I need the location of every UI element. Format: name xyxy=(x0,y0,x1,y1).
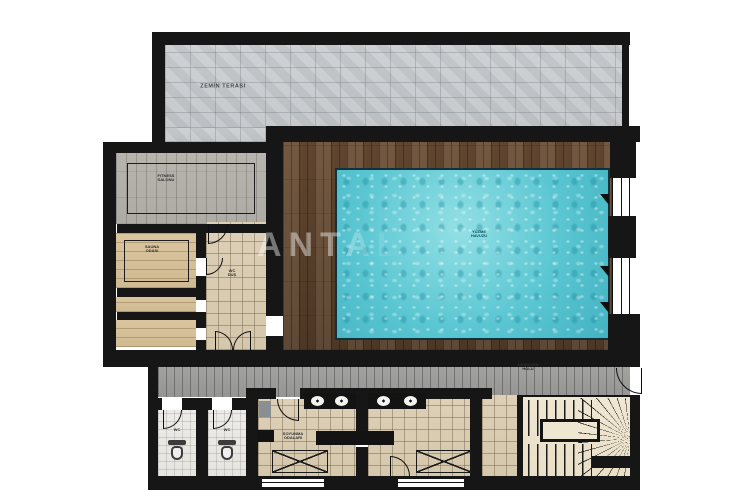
pool-label: YÜZME HAVUZU xyxy=(471,230,487,239)
wall-wc-mid xyxy=(196,398,208,478)
wall-left-block-top xyxy=(103,142,266,153)
toilet-icon xyxy=(168,440,186,462)
wall-changing-mid-2 xyxy=(356,447,368,478)
wall-right-block-b xyxy=(608,216,636,258)
fitness-label: FITNESS SALONU xyxy=(158,174,175,183)
toilet-icon xyxy=(218,440,236,462)
sink-icon xyxy=(335,396,348,406)
terrace-label: ZEMİN TERASI xyxy=(200,83,245,89)
shower-hall-label: WC DUŞ xyxy=(228,269,236,278)
stair-lobby-floor xyxy=(482,395,517,478)
wc-right-label: WC xyxy=(224,428,231,432)
small-room-1-floor xyxy=(116,297,196,312)
window-triangle-icon xyxy=(600,194,609,205)
wc-left-label: WC xyxy=(174,428,181,432)
wall-terrace-left xyxy=(152,32,165,142)
wall-bottom-long xyxy=(103,350,640,367)
watermark: ANTAL xyxy=(257,226,405,265)
wall-top xyxy=(152,32,630,45)
toilet-bowl xyxy=(221,446,233,460)
wall-wc-top-1 xyxy=(148,398,162,410)
small-room-2-floor xyxy=(116,320,196,347)
window-mullion xyxy=(621,258,622,314)
wall-fitness-bottom xyxy=(117,224,266,233)
wall-changing-mid-1 xyxy=(356,399,368,433)
bottom-window-1 xyxy=(262,479,324,487)
window-triangle-icon xyxy=(600,302,609,313)
bottom-window-2 xyxy=(398,479,464,487)
hall-label-line2: DUŞ xyxy=(228,273,236,277)
stair-hall-label: MERDİVEN HOLÜ xyxy=(517,363,538,372)
floor-plan: ZEMİN TERASI FITNESS SALONU SAUNA ODASI … xyxy=(0,0,750,500)
sink-icon xyxy=(311,396,324,406)
changing-label: SOYUNMA ODALARI xyxy=(283,432,303,441)
pool-window-2 xyxy=(612,258,630,314)
wall-wc-right xyxy=(246,388,258,488)
wall-terrace-right xyxy=(622,32,629,132)
shower-cubicle-b xyxy=(416,450,472,473)
stair-hall-label-line2: HOLÜ xyxy=(522,367,533,371)
wall-stair-right xyxy=(630,395,640,488)
window-triangle-icon xyxy=(600,266,609,277)
wall-right-block-a xyxy=(610,126,636,178)
wall-deck-top xyxy=(266,126,640,142)
sauna-label: SAUNA ODASI xyxy=(145,245,159,254)
sauna-label-line2: ODASI xyxy=(146,249,159,253)
wall-stair-lobby-right xyxy=(517,395,523,478)
shower-cubicle-a xyxy=(272,450,328,473)
wall-sauna-right-3 xyxy=(196,312,206,328)
wall-right-block-c xyxy=(608,314,640,352)
bench-left xyxy=(258,430,274,442)
wall-left-outer xyxy=(103,142,116,359)
wall-bottom xyxy=(148,476,640,490)
fitness-label-line2: SALONU xyxy=(158,178,175,182)
toilet-bowl xyxy=(171,446,183,460)
shower-pad xyxy=(259,401,271,417)
wall-changing-top-1 xyxy=(258,388,276,399)
sink-icon xyxy=(377,396,390,406)
wall-sauna-bottom xyxy=(117,288,206,297)
wall-corridor-left xyxy=(148,367,158,488)
pool-label-line2: HAVUZU xyxy=(471,234,487,238)
wall-small-rooms-divider xyxy=(117,312,196,320)
wall-sauna-right-1 xyxy=(196,224,206,258)
wall-stair-landing xyxy=(592,456,632,468)
pool-window-1 xyxy=(612,178,630,216)
wall-changing-right xyxy=(470,388,482,488)
toilet-tank xyxy=(218,440,236,445)
window-mullion xyxy=(621,178,622,216)
toilet-tank xyxy=(168,440,186,445)
changing-label-line2: ODALARI xyxy=(284,436,302,440)
terrace-floor-ext xyxy=(165,128,266,142)
bench-bar xyxy=(316,431,394,445)
fitness-ceiling-line xyxy=(127,163,255,214)
sink-icon xyxy=(404,396,417,406)
